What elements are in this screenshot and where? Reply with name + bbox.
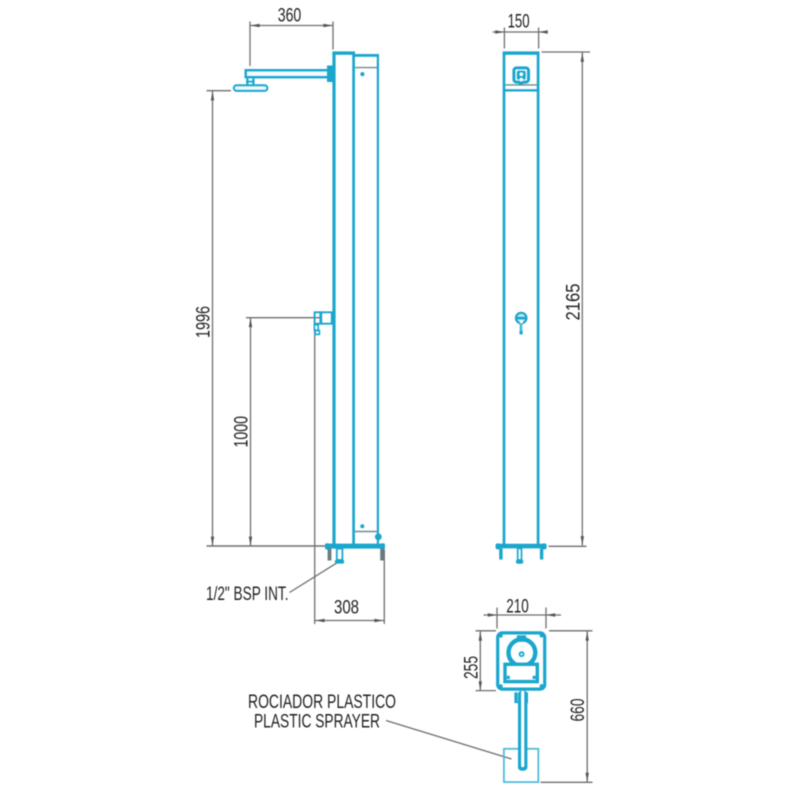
svg-text:660: 660 xyxy=(567,698,589,721)
svg-text:1996: 1996 xyxy=(193,306,215,338)
svg-text:255: 255 xyxy=(461,656,483,679)
svg-text:1000: 1000 xyxy=(231,416,253,448)
svg-text:210: 210 xyxy=(506,596,529,618)
svg-text:1/2" BSP INT.: 1/2" BSP INT. xyxy=(206,583,289,605)
svg-text:PLASTIC SPRAYER: PLASTIC SPRAYER xyxy=(254,711,380,733)
svg-text:360: 360 xyxy=(278,5,302,27)
svg-text:150: 150 xyxy=(508,11,530,33)
svg-text:2165: 2165 xyxy=(563,283,585,320)
svg-text:308: 308 xyxy=(334,597,359,619)
